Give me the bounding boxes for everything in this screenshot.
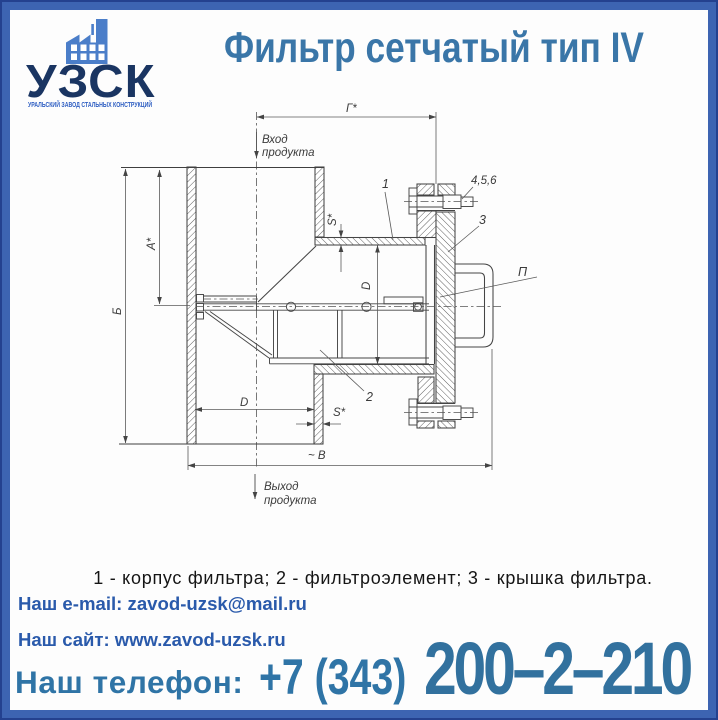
svg-text:~ В: ~ В [308,450,326,462]
svg-text:1: 1 [382,177,389,191]
svg-text:S*: S* [333,407,346,419]
svg-text:Б: Б [112,307,124,315]
svg-text:S*: S* [327,213,339,226]
svg-text:2: 2 [365,390,373,404]
svg-text:3: 3 [479,213,486,227]
svg-text:продукта: продукта [262,147,315,159]
svg-text:продукта: продукта [264,495,317,507]
svg-text:Вход: Вход [262,134,288,146]
svg-text:П: П [518,265,528,279]
svg-text:Г*: Г* [346,103,357,115]
svg-text:4,5,6: 4,5,6 [471,175,497,187]
svg-text:D: D [240,397,248,409]
svg-text:D: D [361,282,373,290]
svg-text:Выход: Выход [264,481,299,493]
svg-text:А*: А* [146,237,158,251]
